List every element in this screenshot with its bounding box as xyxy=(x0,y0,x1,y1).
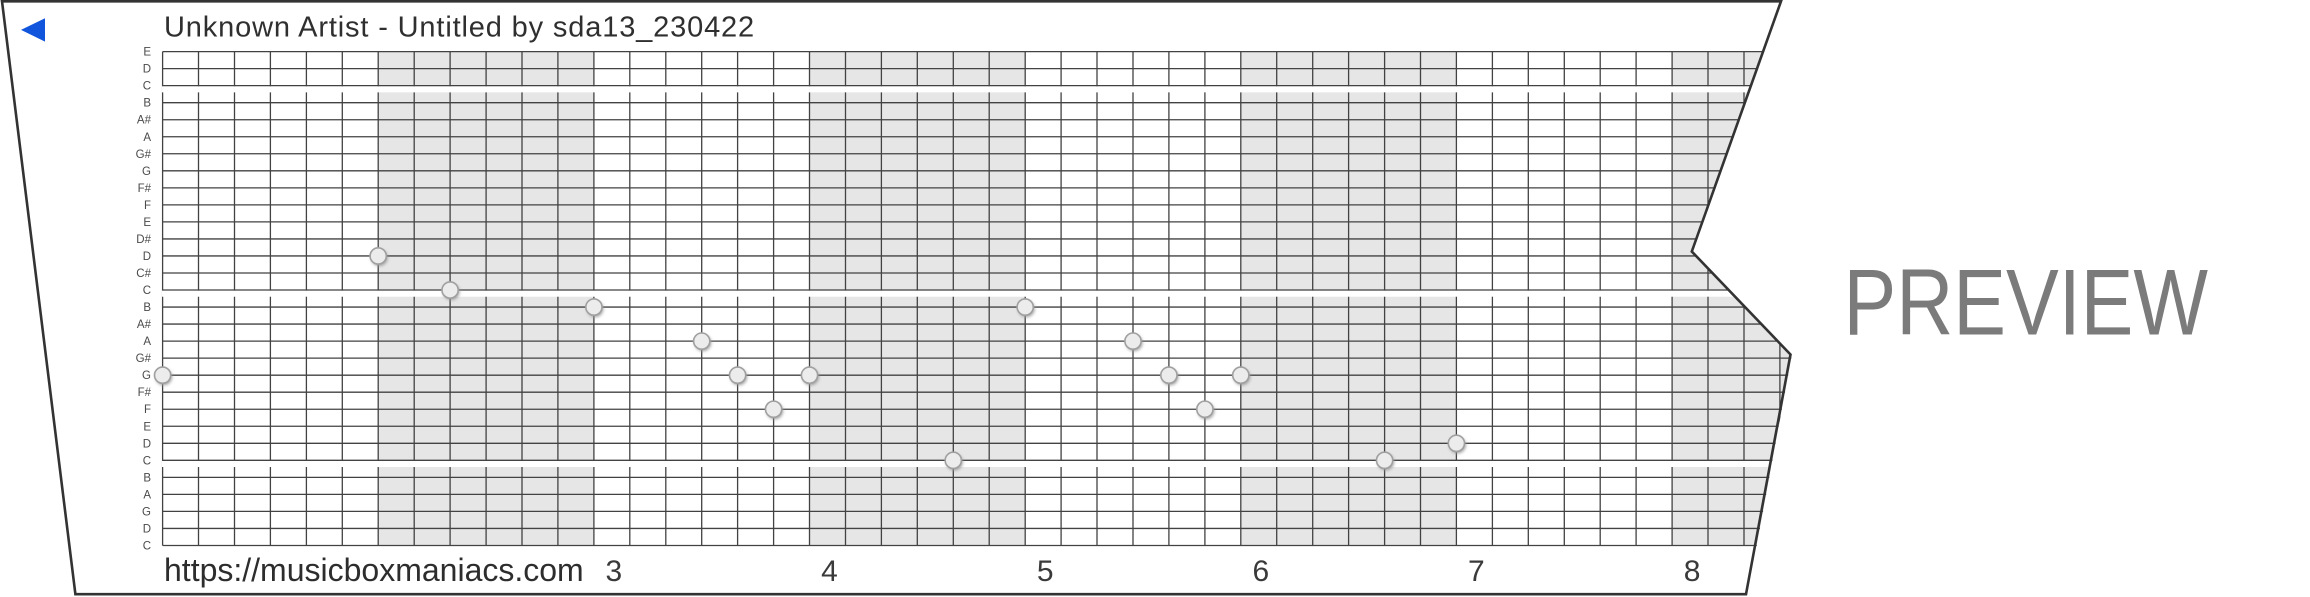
svg-text:8: 8 xyxy=(1684,555,1701,588)
svg-text:F: F xyxy=(144,404,151,416)
svg-text:C: C xyxy=(143,285,151,297)
svg-text:B: B xyxy=(143,302,151,314)
svg-text:A: A xyxy=(143,336,151,348)
svg-text:4: 4 xyxy=(821,555,838,588)
svg-text:F#: F# xyxy=(138,387,152,399)
svg-text:A: A xyxy=(143,489,151,501)
svg-text:G: G xyxy=(142,506,151,518)
svg-text:F: F xyxy=(144,200,151,212)
svg-text:A#: A# xyxy=(137,115,152,127)
svg-text:D: D xyxy=(143,523,151,535)
svg-text:G: G xyxy=(142,370,151,382)
svg-text:C#: C# xyxy=(136,268,151,280)
svg-text:3: 3 xyxy=(606,555,623,588)
svg-text:D: D xyxy=(143,64,151,76)
svg-text:https://musicboxmaniacs.com: https://musicboxmaniacs.com xyxy=(164,552,584,588)
svg-text:G#: G# xyxy=(136,353,152,365)
svg-text:PREVIEW: PREVIEW xyxy=(1844,250,2209,355)
svg-text:Unknown Artist - Untitled by s: Unknown Artist - Untitled by sda13_23042… xyxy=(164,12,755,44)
svg-text:E: E xyxy=(143,217,151,229)
svg-text:C: C xyxy=(143,540,151,552)
svg-text:E: E xyxy=(143,421,151,433)
svg-text:D: D xyxy=(143,438,151,450)
svg-text:G#: G# xyxy=(136,149,152,161)
svg-text:F#: F# xyxy=(138,183,152,195)
svg-text:7: 7 xyxy=(1468,555,1485,588)
svg-text:6: 6 xyxy=(1252,555,1269,588)
svg-text:G: G xyxy=(142,166,151,178)
svg-text:A: A xyxy=(143,132,151,144)
svg-text:D#: D# xyxy=(136,234,151,246)
svg-text:C: C xyxy=(143,455,151,467)
svg-text:C: C xyxy=(143,81,151,93)
svg-text:B: B xyxy=(143,472,151,484)
svg-text:5: 5 xyxy=(1037,555,1054,588)
svg-text:E: E xyxy=(143,47,151,59)
svg-text:D: D xyxy=(143,251,151,263)
svg-text:B: B xyxy=(143,98,151,110)
svg-text:A#: A# xyxy=(137,319,152,331)
